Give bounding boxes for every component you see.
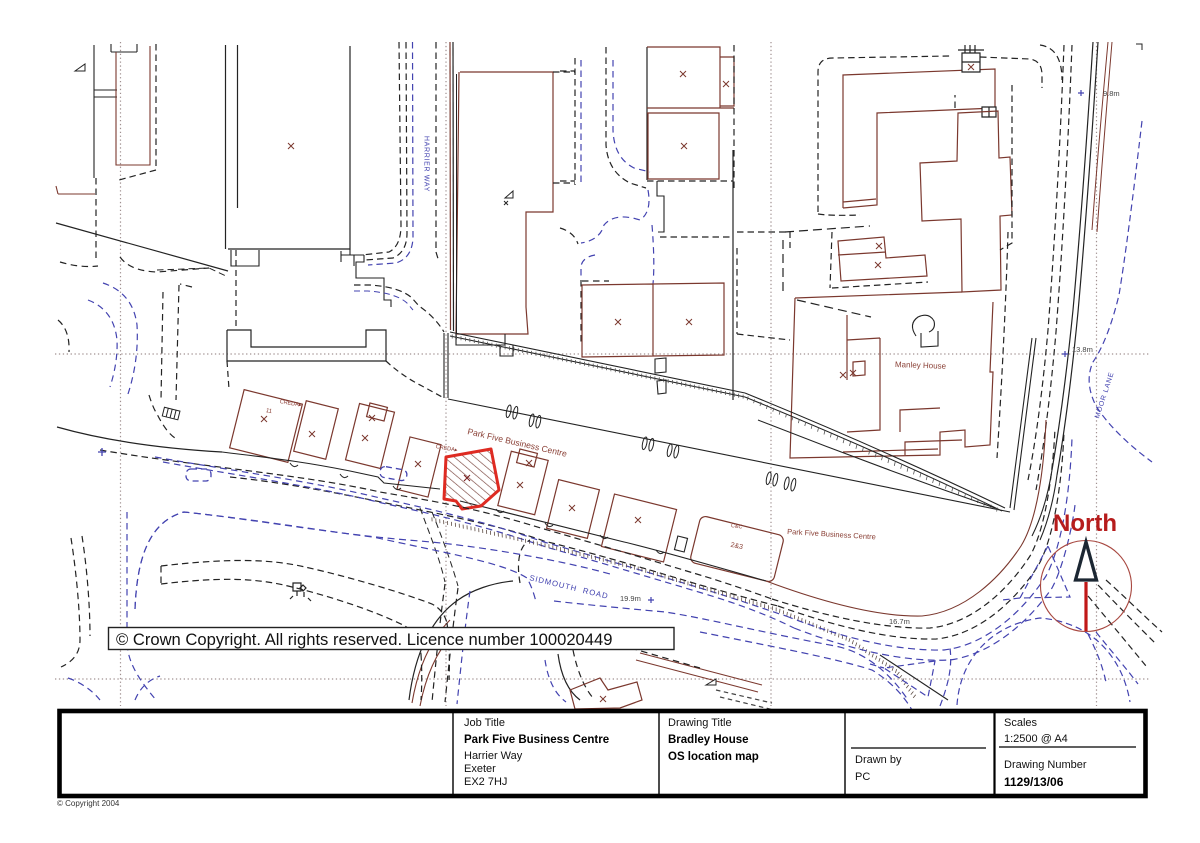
svg-text:CREDA▸: CREDA▸	[279, 399, 302, 409]
svg-text:16.7m: 16.7m	[889, 617, 910, 626]
svg-text:OS location map: OS location map	[668, 751, 759, 763]
svg-text:Exeter: Exeter	[464, 763, 496, 775]
svg-text:Bradley House: Bradley House	[668, 734, 749, 746]
svg-text:11: 11	[265, 408, 273, 415]
svg-text:EX2 7HJ: EX2 7HJ	[464, 776, 507, 788]
svg-text:1:2500 @ A4: 1:2500 @ A4	[1004, 733, 1068, 745]
svg-text:Harrier Way: Harrier Way	[464, 750, 523, 762]
svg-text:9.8m: 9.8m	[1103, 89, 1120, 98]
svg-text:© Crown Copyright. All rights: © Crown Copyright. All rights reserved. …	[116, 630, 612, 649]
svg-text:1129/13/06: 1129/13/06	[1004, 775, 1064, 789]
svg-text:Park Five Business Centre: Park Five Business Centre	[464, 734, 609, 746]
svg-text:C&C: C&C	[730, 523, 742, 531]
svg-text:SIDMOUTH ROAD: SIDMOUTH ROAD	[529, 573, 610, 601]
svg-text:2&3: 2&3	[730, 542, 744, 551]
svg-text:HARRIER WAY: HARRIER WAY	[423, 136, 430, 192]
svg-text:Scales: Scales	[1004, 717, 1038, 729]
svg-text:13.8m: 13.8m	[1072, 345, 1093, 354]
svg-text:Manley House: Manley House	[895, 360, 947, 371]
svg-text:MOOR LANE: MOOR LANE	[1094, 371, 1116, 419]
svg-text:19.9m: 19.9m	[620, 594, 641, 603]
svg-text:Drawn by: Drawn by	[855, 754, 902, 766]
svg-text:Job Title: Job Title	[464, 717, 505, 729]
svg-text:Park Five Business Centre: Park Five Business Centre	[787, 527, 876, 541]
svg-text:PC: PC	[855, 771, 870, 783]
svg-text:© Copyright 2004: © Copyright 2004	[57, 799, 120, 808]
svg-text:Drawing Title: Drawing Title	[668, 717, 732, 729]
svg-text:Drawing Number: Drawing Number	[1004, 759, 1087, 771]
svg-text:North: North	[1053, 510, 1117, 537]
